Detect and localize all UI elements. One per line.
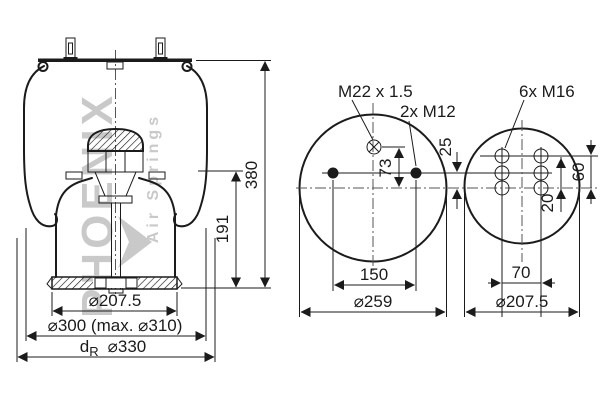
dim-330-text: dR⌀330 [80,337,146,359]
stud-hole-left [328,168,339,179]
dim-207-right-text: ⌀207.5 [496,292,549,311]
dim-overall-height: 380 [242,62,265,288]
dim-300-text: ⌀300 (max. ⌀310) [48,316,183,335]
dim-60-text: 60 [569,163,588,182]
dim-73-text: 73 [376,159,395,178]
dim-25-text: 25 [436,138,455,157]
dim-stud-spacing: 150 [335,265,415,285]
bellows-right-outline [174,66,207,226]
dim-150-text: 150 [360,265,388,284]
dim-bellows-diameter: ⌀300 (max. ⌀310) [27,316,205,336]
dim-plate-diameter: ⌀259 [301,292,445,312]
stud-hole-right [411,168,422,179]
air-spring-technical-drawing: PHOENIX Air Springs [0,0,600,400]
dim-piston-height: 191 [213,172,236,287]
bellows-left-outline [24,66,57,226]
dim-col-spacing: 70 [488,263,555,283]
watermark-tagline-text: Air Springs [145,113,162,243]
bottom-view-piston: 6x M16 60 20 70 ⌀207.5 [465,82,599,317]
label-m16-text: 6x M16 [519,82,575,101]
mounting-stud-right [154,38,168,60]
top-plate [38,59,192,63]
dim-roll-diameter: dR⌀330 [18,337,214,359]
leader-m22 [352,100,373,140]
leader-m16 [505,100,524,148]
dim-191-text: 191 [213,215,232,243]
label-m12-text: 2x M12 [400,102,456,121]
flange-center-clear [93,278,138,288]
dim-piston-bottom-diameter: ⌀207.5 [466,292,578,312]
dim-fitting-offset: 73 [376,147,405,187]
label-m22-text: M22 x 1.5 [338,82,413,101]
dim-70-text: 70 [512,263,531,282]
air-fitting-symbol [367,140,381,154]
side-view: 380 191 ⌀207.5 ⌀300 (max. ⌀310) dR⌀330 [17,38,271,362]
technical-drawing-page: PHOENIX Air Springs [0,0,600,400]
mounting-stud-left [64,38,78,60]
dim-259-text: ⌀259 [354,292,393,311]
dim-piston-diameter: ⌀207.5 [53,291,176,311]
dim-207-text: ⌀207.5 [89,291,142,310]
dim-20-text: 20 [538,194,557,213]
rubber-buffer [88,129,143,151]
dim-380-text: 380 [242,161,261,189]
